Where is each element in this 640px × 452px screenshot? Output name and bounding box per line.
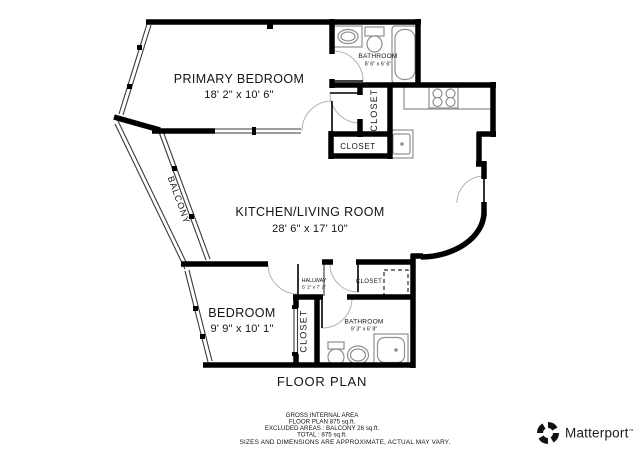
bathroom-bottom-label: BATHROOM: [344, 319, 383, 326]
hallway-label: HALLWAY: [302, 278, 327, 284]
kitchen-living-dims: 28' 6" x 17' 10": [272, 223, 348, 235]
bedroom-dims: 9' 9" x 10' 1": [210, 323, 273, 335]
shower-drain: [394, 348, 398, 352]
floor-plan-image: PRIMARY BEDROOM 18' 2" x 10' 6" BATHROOM…: [0, 0, 640, 452]
bathroom-top-label: BATHROOM: [358, 53, 397, 60]
primary-bedroom-dims: 18' 2" x 10' 6": [204, 89, 273, 101]
burner: [433, 98, 442, 107]
bathroom-bottom-fixtures: [328, 334, 408, 366]
area-summary: GROSS INTERNAL AREA FLOOR PLAN 875 sq.ft…: [240, 412, 451, 446]
toilet-tank: [365, 27, 384, 36]
burner: [446, 89, 455, 98]
shower-pan: [378, 338, 405, 363]
primary-bedroom-label: PRIMARY BEDROOM: [174, 72, 305, 86]
matterport-wordmark: Matterport™: [565, 426, 634, 441]
toilet-tank: [328, 342, 344, 349]
sink-bowl-inner: [341, 32, 355, 41]
matterport-icon: [537, 422, 559, 444]
closet-bedroom-label: CLOSET: [299, 309, 309, 352]
hallway-dims: 5' 2" x 7' 2": [302, 285, 326, 291]
toilet-bowl: [367, 36, 382, 52]
sink-bowl-inner: [351, 349, 366, 361]
closet-bathroom-label: CLOSET: [369, 88, 379, 131]
total-area: TOTAL : 875 sq.ft.: [297, 432, 347, 439]
bathtub-basin: [395, 30, 415, 80]
disclaimer: SIZES AND DIMENSIONS ARE APPROXIMATE, AC…: [240, 439, 451, 446]
faucet-dot: [400, 142, 404, 146]
dashed-closet-outline: [384, 270, 408, 298]
bathroom-top-dims: 8' 6" x 6' 6": [365, 62, 392, 68]
closet-kitchen-label: CLOSET: [340, 142, 376, 151]
bedroom-label: BEDROOM: [208, 306, 275, 320]
burner: [433, 89, 442, 98]
matterport-logo: Matterport™: [537, 422, 634, 444]
burner: [446, 98, 455, 107]
closet-hallway-label: CLOSET: [356, 279, 382, 285]
kitchen-living-label: KITCHEN/LIVING ROOM: [235, 205, 384, 219]
page-title: FLOOR PLAN: [277, 374, 367, 389]
bathroom-bottom-dims: 9' 3" x 6' 8": [351, 327, 378, 333]
